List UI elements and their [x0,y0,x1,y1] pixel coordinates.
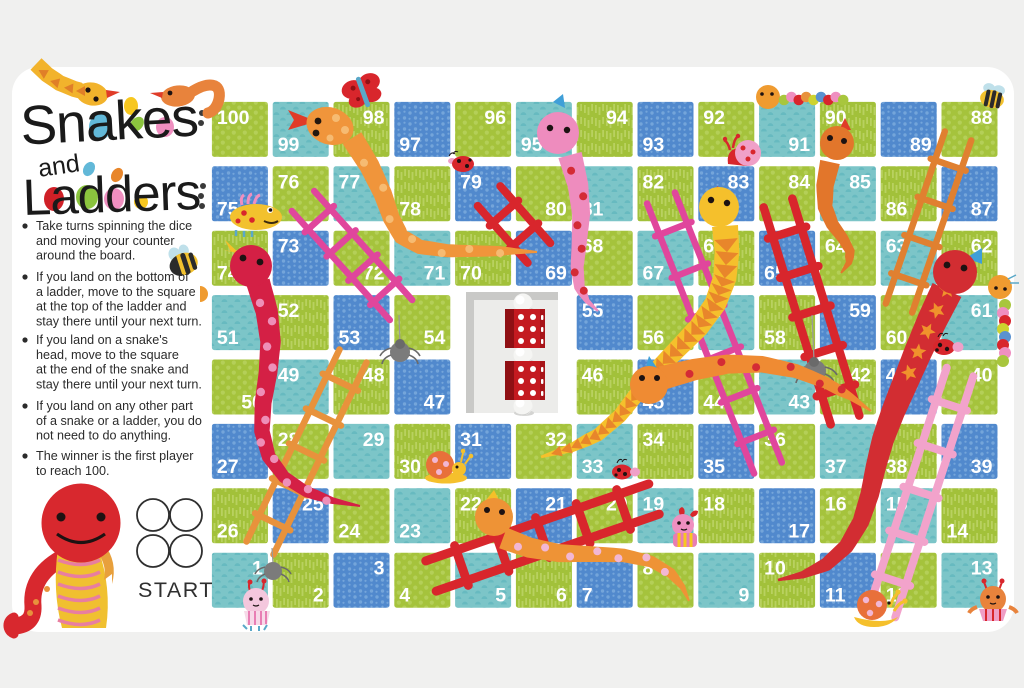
svg-text:82: 82 [643,171,665,193]
svg-text:If you land on the bottom of: If you land on the bottom of [36,270,189,284]
svg-text:56: 56 [643,327,665,349]
svg-text:Take turns spinning the dice: Take turns spinning the dice [36,219,192,233]
svg-text:73: 73 [278,236,300,258]
svg-text:88: 88 [971,107,993,129]
svg-text:11: 11 [825,585,846,607]
svg-text:96: 96 [484,107,506,129]
svg-text:77: 77 [339,171,361,193]
svg-text:51: 51 [217,327,239,349]
svg-text:26: 26 [217,520,239,542]
svg-text:35: 35 [703,456,725,478]
svg-text:5: 5 [495,585,506,607]
svg-text:and moving your counter: and moving your counter [36,234,175,248]
svg-text:31: 31 [460,429,482,451]
svg-text:9: 9 [738,585,749,607]
svg-text:7: 7 [582,585,593,607]
svg-text:16: 16 [825,493,847,515]
svg-text:17: 17 [788,520,810,542]
svg-text:at the top of the ladder and: at the top of the ladder and [36,300,187,314]
svg-text:87: 87 [971,198,993,220]
svg-text:93: 93 [643,134,665,156]
svg-text:39: 39 [971,456,993,478]
svg-text:30: 30 [399,456,421,478]
svg-text:6: 6 [556,585,567,607]
svg-text:80: 80 [545,198,567,220]
svg-text:47: 47 [424,392,446,414]
svg-text:14: 14 [947,520,969,542]
svg-text:2: 2 [313,585,324,607]
svg-text:37: 37 [825,456,847,478]
svg-text:59: 59 [849,300,871,322]
svg-text:79: 79 [460,171,482,193]
svg-text:Ladders: Ladders [22,163,201,226]
svg-text:92: 92 [703,107,725,129]
svg-text:If you land on a snake's: If you land on a snake's [36,333,168,347]
svg-text:23: 23 [399,520,421,542]
svg-text:18: 18 [703,493,725,515]
svg-text:60: 60 [886,327,908,349]
svg-text:33: 33 [582,456,604,478]
svg-text:head, move to the square: head, move to the square [36,348,179,362]
svg-text:67: 67 [643,263,665,285]
svg-text:49: 49 [278,365,300,387]
svg-text:stay there until your next tur: stay there until your next turn. [36,377,202,391]
svg-text:91: 91 [788,134,810,156]
svg-text:46: 46 [582,365,604,387]
svg-text:38: 38 [886,456,908,478]
svg-text:54: 54 [424,327,446,349]
svg-text:to reach 100.: to reach 100. [36,464,110,478]
svg-text:43: 43 [788,392,810,414]
svg-text:89: 89 [910,134,932,156]
svg-text:99: 99 [278,134,300,156]
svg-text:100: 100 [217,107,250,129]
svg-text:27: 27 [217,456,239,478]
svg-text:94: 94 [606,107,628,129]
svg-text:4: 4 [399,585,410,607]
svg-text:85: 85 [849,171,871,193]
svg-text:61: 61 [971,300,993,322]
svg-text:13: 13 [971,558,993,580]
svg-text:34: 34 [643,429,665,451]
svg-text:78: 78 [399,198,421,220]
svg-text:52: 52 [278,300,300,322]
svg-text:76: 76 [278,171,300,193]
svg-text:53: 53 [339,327,361,349]
svg-text:of a snake or a ladder, you do: of a snake or a ladder, you do [36,414,202,428]
svg-text:98: 98 [363,107,385,129]
svg-text:10: 10 [764,558,786,580]
svg-text:71: 71 [424,263,446,285]
svg-text:If you land on any other part: If you land on any other part [36,399,193,413]
svg-text:84: 84 [788,171,810,193]
svg-text:83: 83 [728,171,750,193]
svg-text:86: 86 [886,198,908,220]
svg-text:70: 70 [460,263,482,285]
svg-text:around the board.: around the board. [36,249,135,263]
svg-text:69: 69 [545,263,567,285]
svg-text:stay there until your next tur: stay there until your next turn. [36,314,202,328]
svg-text:START: START [138,578,214,602]
svg-text:29: 29 [363,429,385,451]
svg-text:The winner is the first player: The winner is the first player [36,449,193,463]
svg-text:a ladder, move to the square: a ladder, move to the square [36,285,196,299]
svg-text:Snakes: Snakes [19,85,199,156]
svg-text:24: 24 [339,520,361,542]
svg-text:3: 3 [374,558,385,580]
svg-text:at the end of the snake and: at the end of the snake and [36,363,189,377]
svg-text:97: 97 [399,134,421,156]
svg-text:not need to do anything.: not need to do anything. [36,429,171,443]
svg-text:58: 58 [764,327,786,349]
